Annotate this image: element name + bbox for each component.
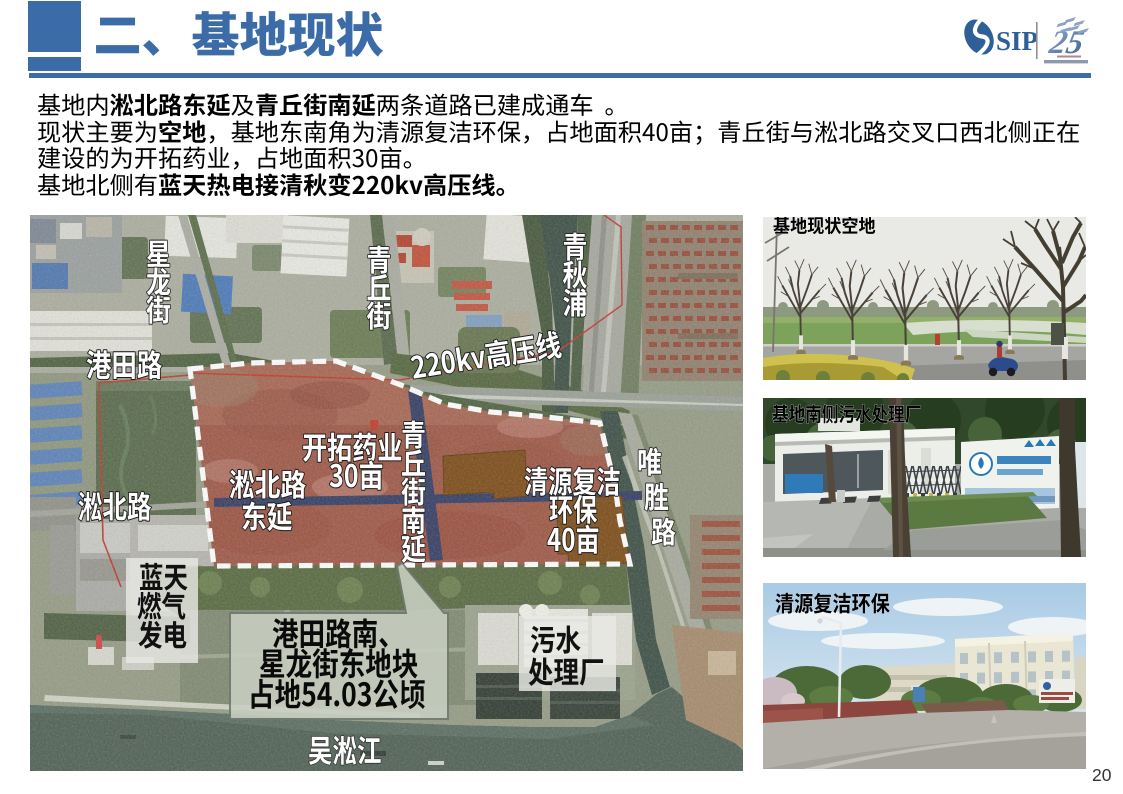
svg-text:SIP: SIP: [996, 26, 1038, 56]
